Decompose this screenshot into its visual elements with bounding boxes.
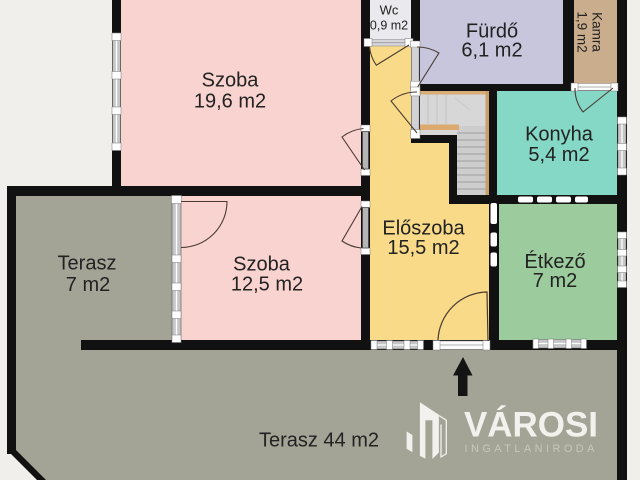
svg-text:Konyha: Konyha [525, 123, 594, 145]
svg-text:Szoba: Szoba [233, 254, 291, 276]
svg-text:12,5 m2: 12,5 m2 [231, 274, 303, 296]
svg-text:INGATLANIRODA: INGATLANIRODA [465, 443, 598, 455]
svg-text:6,1 m2: 6,1 m2 [461, 40, 522, 62]
svg-text:Terasz 44 m2: Terasz 44 m2 [259, 429, 379, 451]
svg-text:Kamra: Kamra [590, 12, 605, 52]
svg-text:7 m2: 7 m2 [533, 270, 577, 292]
svg-text:19,6 m2: 19,6 m2 [194, 90, 266, 112]
svg-text:Szoba: Szoba [202, 70, 260, 92]
svg-text:15,5 m2: 15,5 m2 [387, 237, 459, 259]
svg-text:1,9 m2: 1,9 m2 [575, 11, 590, 52]
svg-text:Wc: Wc [380, 3, 399, 18]
svg-text:0,9 m2: 0,9 m2 [370, 19, 408, 33]
svg-text:5,4 m2: 5,4 m2 [528, 144, 589, 166]
svg-text:7 m2: 7 m2 [66, 274, 110, 296]
svg-text:Terasz: Terasz [58, 253, 117, 275]
svg-text:VÁROSI: VÁROSI [464, 405, 598, 445]
